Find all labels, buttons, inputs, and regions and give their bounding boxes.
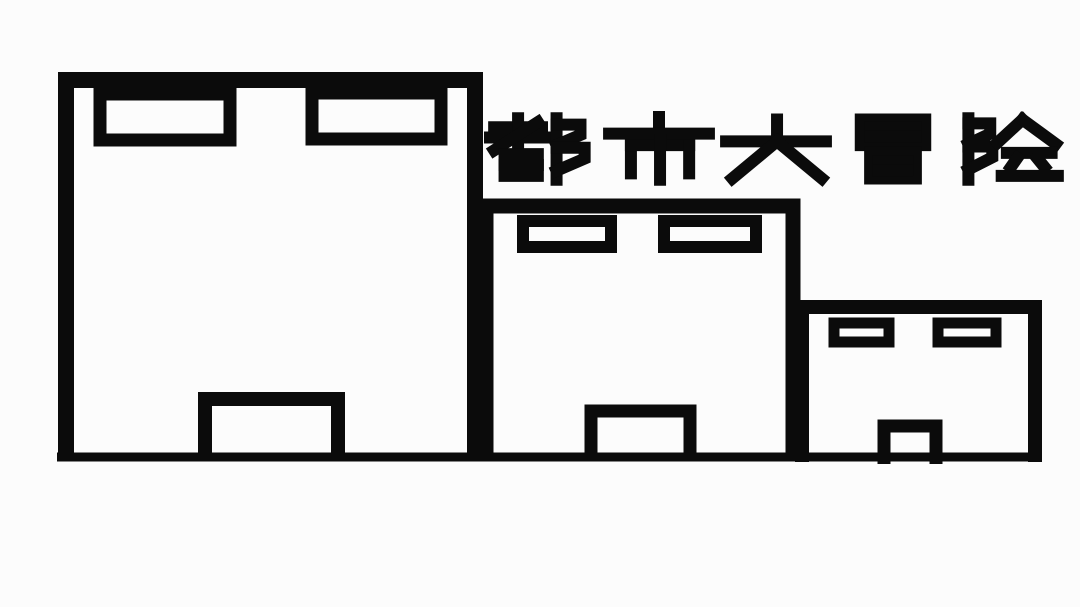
building-small [802,307,1035,464]
building-large-door [205,399,338,458]
building-small-window-left [834,323,889,342]
building-small-window-right [938,323,996,342]
title-char-mao: 冒 [841,117,945,181]
building-large-window-right [312,93,441,139]
title-card: 都市大冒险 都 市 大 [0,0,1080,607]
building-medium [486,206,793,458]
building-large [66,80,475,458]
title-char-du: 都 [490,117,594,181]
city-skyline-drawing [0,0,1080,607]
building-medium-door [591,411,690,458]
building-large-window-left [100,94,230,140]
title-char-shi: 市 [607,117,711,181]
building-medium-window-left [523,221,611,247]
building-medium-window-right [664,221,756,247]
title-char-xian: 险 [958,117,1062,181]
game-title: 都市大冒险 都 市 大 [490,117,1062,181]
title-char-da: 大 [724,117,828,181]
